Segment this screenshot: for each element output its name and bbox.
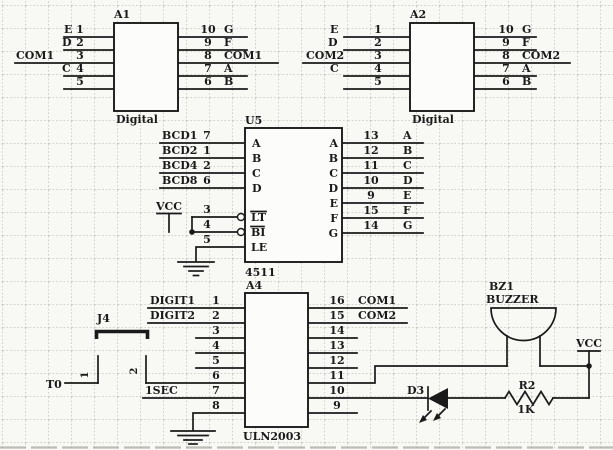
a4-pin12-number: 12	[329, 354, 344, 367]
a4-pin1-number: 1	[212, 294, 220, 307]
a1-pin6-name: B	[224, 75, 233, 88]
a2-pin2-name: D	[328, 36, 338, 49]
u5-pin7-number: 7	[203, 129, 211, 142]
a1-body[interactable]	[114, 23, 178, 111]
u5-pin9-number: 9	[367, 189, 375, 202]
bz1-ref-label: BZ1	[489, 280, 514, 293]
a1-device-label: Digital	[116, 113, 158, 126]
a4-pin3-number: 3	[212, 324, 220, 337]
a2-pin5-number: 5	[374, 75, 382, 88]
j4-pin1-number: 1	[80, 372, 91, 379]
a4-pin5-number: 5	[212, 354, 220, 367]
u5-out-b-name: B	[403, 144, 412, 157]
a4-pin13-number: 13	[329, 339, 344, 352]
u5-pin11-number: 11	[363, 159, 378, 172]
a2-pin1-number: 1	[374, 23, 382, 36]
u5-pin2-number: 2	[203, 159, 211, 172]
a2-pin8-net: COM2	[522, 49, 560, 62]
a4-pin9-number: 9	[333, 399, 341, 412]
u5-pin12-number: 12	[363, 144, 378, 157]
u5-port-a-in: A	[251, 137, 261, 150]
a1-pin7-number: 7	[204, 62, 212, 75]
a1-pin7-name: A	[223, 62, 233, 75]
t0-net-label: T0	[46, 378, 62, 391]
a2-pin3-number: 3	[374, 49, 382, 62]
a1-pin4-number: 4	[76, 62, 84, 75]
a4-ref-label: A4	[245, 279, 263, 292]
u5-bcd2-net: BCD2	[162, 144, 197, 157]
a2-pin7-name: A	[521, 62, 531, 75]
a1-pin6-number: 6	[204, 75, 212, 88]
u5-device-label: 4511	[245, 266, 276, 279]
u5-pin6-number: 6	[203, 174, 211, 187]
u5-out-a-name: A	[402, 129, 412, 142]
a1-pin8-net: COM1	[224, 49, 262, 62]
a2-device-label: Digital	[412, 113, 454, 126]
a1-pin3-net: COM1	[16, 49, 54, 62]
u5-ref-label: U5	[245, 114, 262, 127]
u5-port-bi: BI	[251, 226, 265, 239]
u5-pin4-number: 4	[203, 218, 211, 231]
u5-port-g-out: G	[329, 227, 338, 240]
a4-digit2-net: DIGIT2	[150, 309, 195, 322]
u5-out-e-name: E	[403, 189, 411, 202]
u5-lt-inversion-bubble	[238, 214, 245, 221]
a4-pin10-number: 10	[329, 384, 345, 397]
a4-device-label: ULN2003	[243, 430, 301, 443]
a4-digit1-net: DIGIT1	[150, 294, 195, 307]
a2-ref-label: A2	[409, 8, 426, 21]
a2-pin9-number: 9	[502, 36, 510, 49]
vcc-junction-dot	[586, 363, 592, 369]
a1-pin5-number: 5	[76, 75, 84, 88]
u5-pin1-number: 1	[203, 144, 211, 157]
a4-com1-net: COM1	[358, 294, 396, 307]
a2-pin10-number: 10	[498, 23, 514, 36]
a2-pin6-name: B	[522, 75, 531, 88]
u5-pin14-number: 14	[363, 219, 379, 232]
u5-vcc-label: VCC	[155, 200, 182, 213]
a4-com2-net: COM2	[358, 309, 396, 322]
a2-pin10-name: G	[522, 23, 531, 36]
a2-pin2-number: 2	[374, 36, 382, 49]
a4-pin2-number: 2	[212, 309, 220, 322]
u5-pin3-number: 3	[203, 203, 211, 216]
u5-bcd8-net: BCD8	[162, 174, 198, 187]
u5-out-g-name: G	[403, 219, 412, 232]
u5-pin5-number: 5	[203, 233, 211, 246]
u5-vcc-junction-dot	[189, 229, 195, 235]
a4-body[interactable]	[245, 293, 308, 427]
u5-port-b-in: B	[252, 152, 261, 165]
u5-out-c-name: C	[403, 159, 412, 172]
a2-body[interactable]	[410, 23, 474, 111]
a4-pin8-number: 8	[212, 399, 220, 412]
schematic-canvas: A1 Digital E D COM1 C 1 2 3 4 5 10 9 8 7…	[0, 0, 613, 450]
a2-pin8-number: 8	[502, 49, 510, 62]
u5-port-f-out: F	[330, 212, 338, 225]
u5-out-d-name: D	[403, 174, 413, 187]
a2-pin6-number: 6	[502, 75, 510, 88]
u5-bcd1-net: BCD1	[162, 129, 197, 142]
a2-pin1-name: E	[330, 23, 338, 36]
a2-pin9-name: F	[522, 36, 530, 49]
a1-pin2-name: D	[62, 36, 72, 49]
a1-pin1-number: 1	[76, 23, 84, 36]
a1-ref-label: A1	[113, 8, 130, 21]
u5-port-b-out: B	[329, 152, 338, 165]
a1-pin1-name: E	[64, 23, 72, 36]
a1-pin9-number: 9	[204, 36, 212, 49]
j4-pin2-number: 2	[129, 367, 140, 374]
a1-pin10-number: 10	[200, 23, 216, 36]
a2-pin3-net: COM2	[306, 49, 344, 62]
u5-port-le: LE	[251, 241, 267, 254]
u5-bcd4-net: BCD4	[162, 159, 198, 172]
a1-pin10-name: G	[224, 23, 233, 36]
a1-pin3-number: 3	[76, 49, 84, 62]
a4-pin16-number: 16	[329, 294, 345, 307]
a4-pin7-number: 7	[212, 384, 220, 397]
a4-pin6-number: 6	[212, 369, 220, 382]
a4-pin14-number: 14	[329, 324, 345, 337]
u5-pin13-number: 13	[363, 129, 378, 142]
a2-pin4-name: C	[330, 62, 339, 75]
a2-pin7-number: 7	[502, 62, 510, 75]
u5-port-d-in: D	[252, 182, 262, 195]
a4-pin4-number: 4	[212, 339, 220, 352]
u5-port-e-out: E	[330, 197, 338, 210]
u5-port-lt: LT	[251, 211, 267, 224]
u5-pin10-number: 10	[363, 174, 379, 187]
u5-out-f-name: F	[403, 204, 411, 217]
a1-pin2-number: 2	[76, 36, 84, 49]
bz1-device-label: BUZZER	[486, 293, 539, 306]
vcc-right-label: VCC	[575, 337, 602, 350]
d3-ref-label: D3	[407, 384, 424, 397]
a1-pin4-name: C	[62, 62, 71, 75]
a4-1sec-net: 1SEC	[145, 384, 178, 397]
a1-pin8-number: 8	[204, 49, 212, 62]
u5-port-a-out: A	[328, 137, 338, 150]
u5-port-c-in: C	[252, 167, 261, 180]
u5-pin15-number: 15	[363, 204, 378, 217]
a4-pin15-number: 15	[329, 309, 344, 322]
a2-pin4-number: 4	[374, 62, 382, 75]
a4-pin11-number: 11	[329, 369, 344, 382]
r2-ref-label: R2	[519, 379, 536, 392]
u5-port-c-out: C	[329, 167, 338, 180]
u5-bi-inversion-bubble	[238, 229, 245, 236]
u5-port-d-out: D	[328, 182, 338, 195]
j4-ref-label: J4	[96, 312, 110, 325]
a1-pin9-name: F	[224, 36, 232, 49]
